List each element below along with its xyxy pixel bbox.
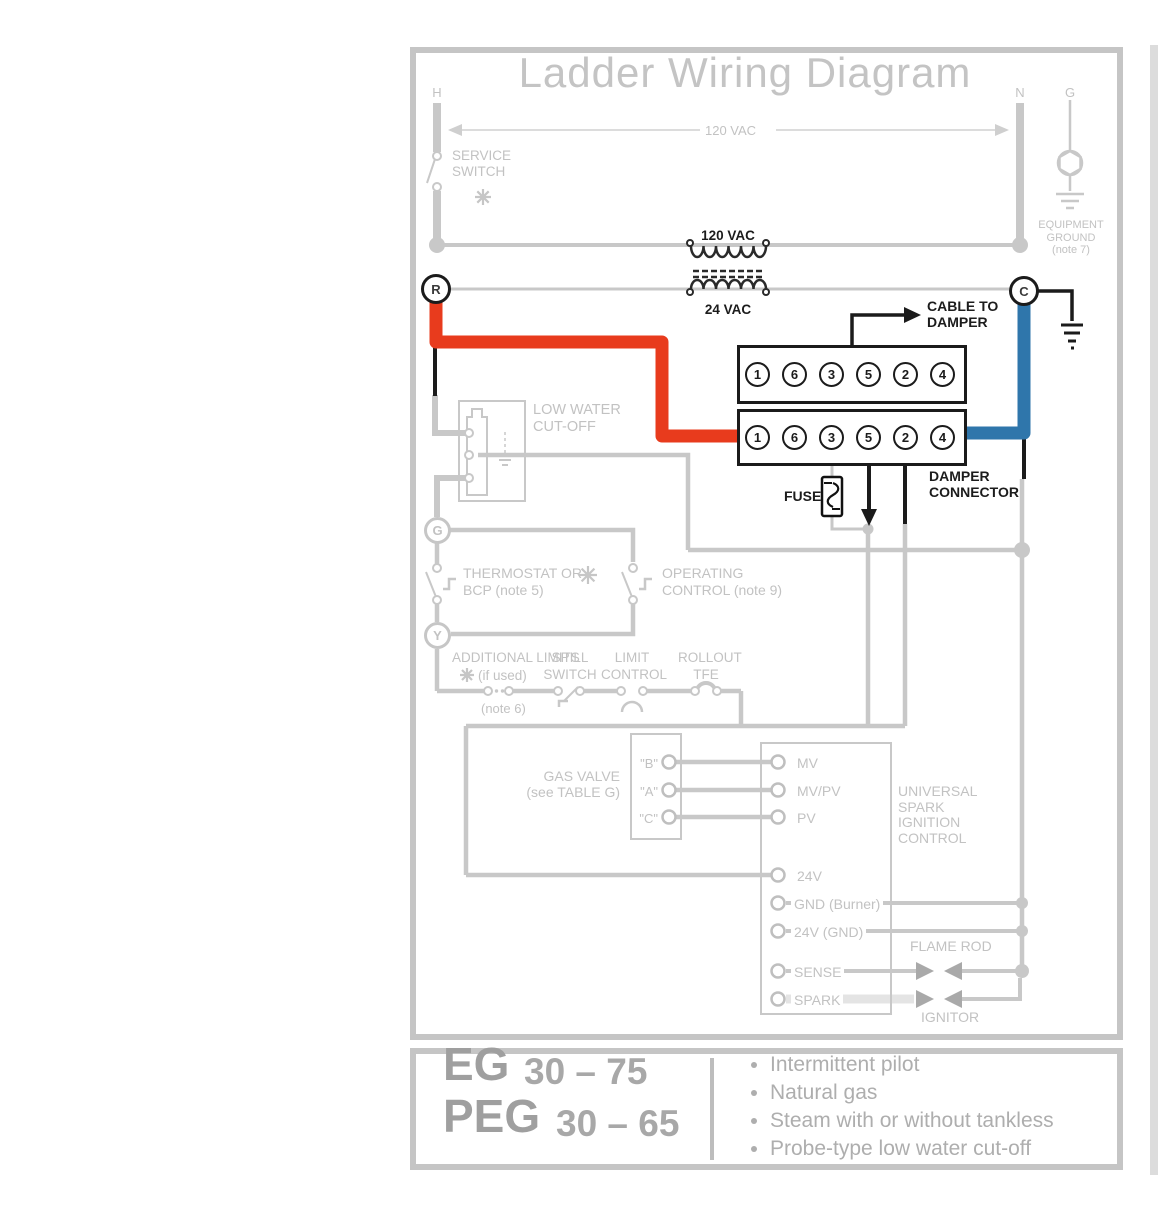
- feature-item: Natural gas: [770, 1079, 1054, 1107]
- ground-nut-icon: [1058, 151, 1082, 175]
- equipment-ground-label: EQUIPMENT GROUND (note 7): [1035, 219, 1107, 257]
- upper-pin-5: 5: [856, 362, 881, 387]
- additional-limits-if-used: (if used): [478, 667, 527, 684]
- service-switch-label: SERVICE SWITCH: [452, 148, 511, 180]
- lwco-box: [458, 400, 526, 502]
- ign-term-sense: SENSE: [791, 964, 844, 981]
- gas-valve-term-a: "A": [632, 783, 658, 800]
- terminal-y: Y: [424, 622, 451, 649]
- damper-connector-label: DAMPER CONNECTOR: [929, 469, 1019, 500]
- ignitor-label: IGNITOR: [921, 1009, 979, 1026]
- ign-term-mv: MV: [797, 755, 818, 772]
- thermostat-blade-icon: [426, 572, 436, 597]
- fuse-label: FUSE: [784, 488, 821, 505]
- sense-arrow-icon: [916, 962, 934, 980]
- ign-term-spark: SPARK: [791, 992, 843, 1009]
- ladder-wiring-diagram-page: 1 6 3 5 2 4 1 6 3 5 2 4 R C G Y Ladder W…: [0, 0, 1160, 1208]
- transformer-icon: [687, 240, 769, 295]
- terminal-g: G: [424, 517, 451, 544]
- feature-item: Intermittent pilot: [770, 1051, 1054, 1079]
- model-eg-range: 30 – 75: [524, 1063, 647, 1080]
- lower-pin-2: 2: [893, 425, 918, 450]
- feature-item: Steam with or without tankless: [770, 1107, 1054, 1135]
- lower-pin-3: 3: [819, 425, 844, 450]
- lwco-label: LOW WATER CUT-OFF: [533, 402, 621, 436]
- spill-switch-label: SPILL SWITCH: [542, 649, 598, 683]
- ign-term-24v-gnd: 24V (GND): [791, 924, 866, 941]
- terminal-r: R: [421, 274, 451, 304]
- lower-pin-1: 1: [745, 425, 770, 450]
- ign-term-gnd-burner: GND (Burner): [791, 896, 883, 913]
- model-eg-code: EG: [443, 1056, 509, 1073]
- flame-rod-arrow-icon: [944, 962, 962, 980]
- model-peg-code: PEG: [443, 1108, 540, 1125]
- gas-valve-label: GAS VALVE (see TABLE G): [500, 768, 620, 800]
- limit-control-dome-icon: [622, 702, 642, 712]
- upper-pin-1: 1: [745, 362, 770, 387]
- ign-term-pv: PV: [797, 810, 816, 827]
- wiring-svg: [0, 0, 1160, 1208]
- gas-valve-term-b: "B": [632, 755, 658, 772]
- transformer-primary-label: 120 VAC: [697, 227, 759, 244]
- h-rail-label: H: [429, 84, 445, 101]
- equipment-ground-icon: [1056, 194, 1084, 208]
- limit-control-label: LIMIT CONTROL: [601, 649, 663, 683]
- spill-switch-blade-icon: [564, 687, 578, 701]
- ignitor-arrow-icon: [944, 990, 962, 1008]
- n-rail-label: N: [1012, 84, 1028, 101]
- cable-to-damper-label: CABLE TO DAMPER: [927, 299, 998, 330]
- rollout-label: ROLLOUT TFE: [678, 649, 734, 683]
- upper-pin-6: 6: [782, 362, 807, 387]
- transformer-secondary-label: 24 VAC: [697, 301, 759, 318]
- upper-pin-3: 3: [819, 362, 844, 387]
- fuse-icon: [822, 477, 842, 516]
- limits-star-icon: [460, 668, 474, 682]
- feature-list: Intermittent pilot Natural gas Steam wit…: [748, 1051, 1054, 1163]
- c-ground-icon: [1061, 325, 1083, 348]
- ign-term-24v: 24V: [797, 868, 822, 885]
- gas-valve-leads: [676, 762, 772, 817]
- spark-arrow-icon: [916, 990, 934, 1008]
- pin5-arrowhead-icon: [861, 509, 877, 526]
- g-rail-label: G: [1062, 84, 1078, 101]
- flame-rod-label: FLAME ROD: [910, 938, 992, 955]
- additional-limits-note: (note 6): [481, 700, 526, 717]
- cable-arrow: [852, 315, 904, 345]
- flame-rod-arrows: [916, 962, 962, 1008]
- footer-divider: [710, 1058, 714, 1160]
- model-peg-range: 30 – 65: [556, 1115, 679, 1132]
- service-switch-blade-icon: [427, 159, 435, 183]
- page-title: Ladder Wiring Diagram: [495, 64, 995, 81]
- feature-item: Probe-type low water cut-off: [770, 1135, 1054, 1163]
- operating-control-label: OPERATING CONTROL (note 9): [662, 565, 782, 599]
- lower-pin-6: 6: [782, 425, 807, 450]
- lower-pin-5: 5: [856, 425, 881, 450]
- cable-arrowhead-icon: [904, 307, 921, 323]
- operating-control-blade-icon: [622, 572, 632, 597]
- universal-spark-label: UNIVERSAL SPARK IGNITION CONTROL: [898, 784, 977, 846]
- terminal-c: C: [1009, 276, 1039, 306]
- upper-pin-2: 2: [893, 362, 918, 387]
- service-star-icon: [475, 189, 491, 205]
- line-voltage-label: 120 VAC: [705, 122, 756, 139]
- c-ground-wire: [1037, 291, 1072, 321]
- lower-pin-4: 4: [930, 425, 955, 450]
- gas-valve-term-c: "C": [632, 810, 658, 827]
- thermostat-label: THERMOSTAT OR BCP (note 5): [463, 565, 582, 599]
- ign-term-mvpv: MV/PV: [797, 783, 841, 800]
- upper-pin-4: 4: [930, 362, 955, 387]
